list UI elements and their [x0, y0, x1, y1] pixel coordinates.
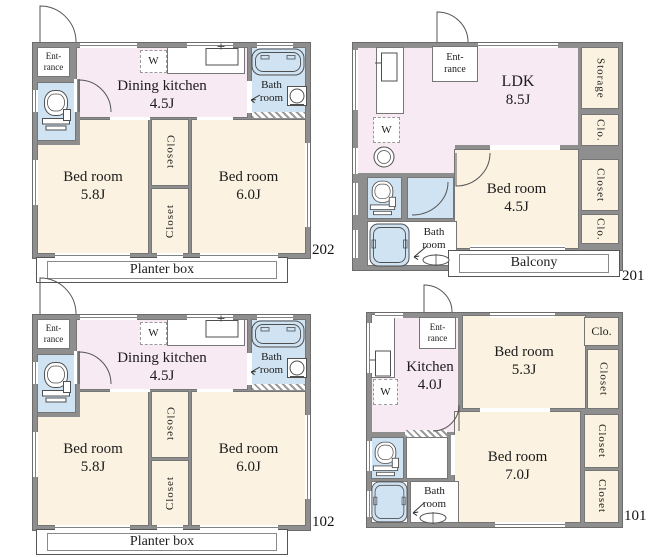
room-toilet: [38, 83, 75, 140]
room-size: 4.0J: [406, 377, 453, 395]
unit-number-201: 201: [622, 268, 645, 285]
room-name: Bed room: [63, 169, 123, 187]
window: [257, 43, 293, 48]
room-bedroom-6-0: Bed room 6.0J: [192, 120, 305, 253]
washer-space: W: [373, 117, 400, 143]
door-opening: [197, 117, 233, 120]
window: [305, 415, 310, 499]
room-name: Bath: [260, 79, 283, 92]
room-bedroom-4-5: Bed room 4.5J: [455, 150, 578, 248]
window: [33, 432, 38, 477]
washer-label: W: [380, 386, 390, 399]
window: [478, 43, 558, 48]
washroom-threshold-hatch: [405, 430, 447, 437]
window: [33, 90, 38, 112]
room-size: 6.0J: [219, 459, 279, 477]
room-bedroom-5-3: Bed room 5.3J: [463, 316, 585, 408]
room-entrance: Ent- rance: [433, 47, 477, 81]
room-name2: room: [260, 92, 283, 105]
window: [33, 160, 38, 205]
bath-threshold-hatch: [252, 112, 305, 118]
room-size: 5.8J: [63, 459, 123, 477]
room-bedroom-7-0: Bed room 7.0J: [455, 412, 580, 522]
window: [353, 50, 358, 110]
bedroom-label: Bed room 5.8J: [63, 169, 123, 204]
entrance-line1: Ent-: [44, 323, 63, 334]
bedroom-label: Bed room 5.3J: [494, 344, 554, 379]
kitchen-counter: [168, 320, 244, 345]
door-opening: [74, 79, 77, 112]
window: [80, 315, 137, 320]
room-size: 7.0J: [488, 467, 548, 485]
closet-label: Closet: [164, 135, 177, 169]
entrance-line1: Ent-: [428, 322, 447, 333]
door-arc: [40, 278, 76, 314]
window: [495, 522, 565, 527]
room-name: Bed room: [63, 441, 123, 459]
room-toilet: [368, 178, 401, 218]
door-opening: [110, 389, 150, 392]
window: [375, 313, 403, 318]
room-entrance: Ent- rance: [38, 48, 69, 76]
unit-number-202: 202: [312, 242, 335, 259]
room-toilet: [38, 355, 75, 412]
planter-box-label: Planter box: [130, 534, 194, 551]
door-opening: [490, 145, 560, 150]
room-size: 5.3J: [494, 362, 554, 380]
window: [305, 143, 310, 227]
bedroom-label: Bed room 7.0J: [488, 449, 548, 484]
closet-mid: Closet: [585, 415, 618, 467]
room-bathtub-area: [372, 482, 407, 522]
window: [187, 43, 233, 48]
bathroom-label: Bath room: [253, 79, 290, 105]
door-opening: [197, 389, 233, 392]
room-name2: room: [260, 364, 283, 377]
storage: Storage: [582, 48, 618, 108]
bedroom-label: Bed room 6.0J: [219, 169, 279, 204]
planter-box-label: Planter box: [130, 262, 194, 279]
room-name2: room: [422, 239, 445, 252]
room-name: Kitchen: [406, 359, 453, 377]
room-entrance: Ent- rance: [38, 320, 69, 348]
bath-threshold-hatch: [252, 384, 305, 390]
kitchen-counter: [168, 48, 244, 73]
window: [257, 315, 293, 320]
washer-space: W: [140, 322, 167, 345]
closet-label: Closet: [595, 479, 608, 513]
unit-202: Dining kitchen 4.5J Bed room 5.8J Bed ro…: [33, 43, 310, 258]
room-entrance: Ent- rance: [420, 318, 455, 348]
closet-label: Clo.: [594, 218, 607, 241]
window: [367, 441, 372, 471]
window: [367, 323, 372, 373]
closet-bottom: Closet: [152, 189, 188, 253]
door-opening: [480, 408, 550, 412]
balcony: Balcony: [448, 250, 620, 277]
window: [157, 253, 183, 258]
closet-label: Clo.: [591, 324, 611, 338]
room-name: Dining kitchen: [117, 78, 207, 96]
closet-top: Closet: [152, 120, 188, 185]
closet-clo: Clo.: [585, 318, 618, 345]
closet-label: Closet: [594, 168, 607, 202]
ldk-label: LDK 8.5J: [473, 71, 563, 111]
entrance-label: Ent- rance: [428, 322, 447, 343]
room-name: Bed room: [488, 449, 548, 467]
planter-box: Planter box: [36, 257, 288, 283]
washer-label: W: [381, 124, 391, 137]
room-name: Dining kitchen: [117, 350, 207, 368]
dining-kitchen-label: Dining kitchen 4.5J: [117, 78, 207, 113]
room-washroom: [407, 438, 447, 478]
room-name: Bath: [423, 485, 446, 498]
door-arc: [437, 12, 468, 42]
unit-101: Kitchen 4.0J W Ent- rance Bed room 5.3J …: [367, 313, 622, 527]
entrance-label: Ent- rance: [44, 323, 63, 344]
kitchen-label: Kitchen 4.0J: [395, 358, 465, 396]
unit-number-102: 102: [312, 514, 335, 531]
closet-clo-bottom: Clo.: [582, 215, 618, 243]
unit-number-101: 101: [624, 508, 647, 525]
room-bath-area: Bath room: [368, 222, 456, 265]
window: [157, 525, 183, 530]
kitchen-counter: [372, 315, 394, 377]
window: [353, 230, 358, 258]
entrance-line2: rance: [44, 334, 63, 345]
closet-bottom: Closet: [152, 461, 188, 525]
door-arc: [424, 285, 452, 312]
room-toilet: [372, 438, 403, 478]
room-name: Bed room: [219, 169, 279, 187]
storage-label: Storage: [594, 58, 607, 99]
door-opening: [247, 353, 252, 385]
window: [200, 253, 278, 258]
room-name: Bed room: [494, 344, 554, 362]
closet-label: Clo.: [594, 119, 607, 142]
door-opening: [451, 435, 455, 475]
bathroom-label: Bath room: [423, 485, 446, 511]
closet-label: Closet: [164, 407, 177, 441]
bedroom-label: Bed room 6.0J: [219, 441, 279, 476]
bedroom-label: Bed room 4.5J: [487, 181, 547, 216]
closet-label: Closet: [595, 424, 608, 458]
closet-label: Closet: [164, 204, 177, 238]
entrance-label: Ent- rance: [444, 52, 466, 76]
window: [187, 315, 233, 320]
kitchen-counter: [377, 48, 403, 113]
balcony-label: Balcony: [511, 255, 558, 272]
room-size: 4.5J: [117, 368, 207, 386]
door-opening: [110, 117, 150, 120]
room-bathroom: Bath room: [252, 320, 305, 389]
closet-bottom: Closet: [585, 471, 618, 522]
window: [367, 491, 372, 517]
closet: Closet: [582, 160, 618, 210]
room-size: 8.5J: [502, 92, 535, 110]
entrance-line2: rance: [44, 62, 63, 73]
bathroom-label: Bath room: [413, 225, 455, 253]
room-name: Bed room: [219, 441, 279, 459]
washer-label: W: [148, 55, 158, 68]
window: [200, 525, 278, 530]
room-name: LDK: [502, 73, 535, 92]
dining-kitchen-label: Dining kitchen 4.5J: [117, 350, 207, 385]
room-bath-area: Bath room: [411, 482, 458, 522]
closet-label: Closet: [164, 476, 177, 510]
room-name: Bed room: [487, 181, 547, 199]
unit-102: Dining kitchen 4.5J Bed room 5.8J Bed ro…: [33, 315, 310, 530]
entrance-line1: Ent-: [44, 51, 63, 62]
window: [353, 148, 358, 174]
window: [55, 525, 130, 530]
room-bedroom-6-0: Bed room 6.0J: [192, 392, 305, 525]
room-size: 5.8J: [63, 187, 123, 205]
room-name: Bath: [422, 226, 445, 239]
door-opening: [74, 351, 77, 384]
window: [470, 245, 565, 250]
closet-top: Closet: [152, 392, 188, 457]
room-size: 4.5J: [487, 199, 547, 217]
door-opening: [247, 81, 252, 113]
closet-clo-top: Clo.: [582, 115, 618, 145]
window: [80, 43, 137, 48]
entrance-label: Ent- rance: [44, 51, 63, 72]
room-washroom: [408, 178, 453, 218]
room-size: 6.0J: [219, 187, 279, 205]
washer-label: W: [148, 327, 158, 340]
window: [353, 183, 358, 215]
entrance-line1: Ent-: [444, 52, 466, 64]
closet-top: Closet: [588, 350, 618, 408]
planter-box: Planter box: [36, 529, 288, 555]
floor-plan-sheet: Dining kitchen 4.5J Bed room 5.8J Bed ro…: [0, 0, 670, 557]
bedroom-label: Bed room 5.8J: [63, 441, 123, 476]
entrance-line2: rance: [444, 64, 466, 76]
entrance-line2: rance: [428, 333, 447, 344]
closet-label: Closet: [597, 362, 610, 396]
window: [33, 362, 38, 384]
window: [490, 313, 555, 318]
unit-201: LDK 8.5J W Ent- rance Storage Clo. Close…: [353, 43, 622, 270]
door-arc: [40, 6, 76, 42]
window: [55, 253, 130, 258]
room-name2: room: [423, 498, 446, 511]
room-bathroom: Bath room: [252, 48, 305, 117]
room-size: 4.5J: [117, 96, 207, 114]
bathroom-label: Bath room: [253, 351, 290, 377]
washer-space: W: [140, 50, 167, 73]
room-name: Bath: [260, 351, 283, 364]
